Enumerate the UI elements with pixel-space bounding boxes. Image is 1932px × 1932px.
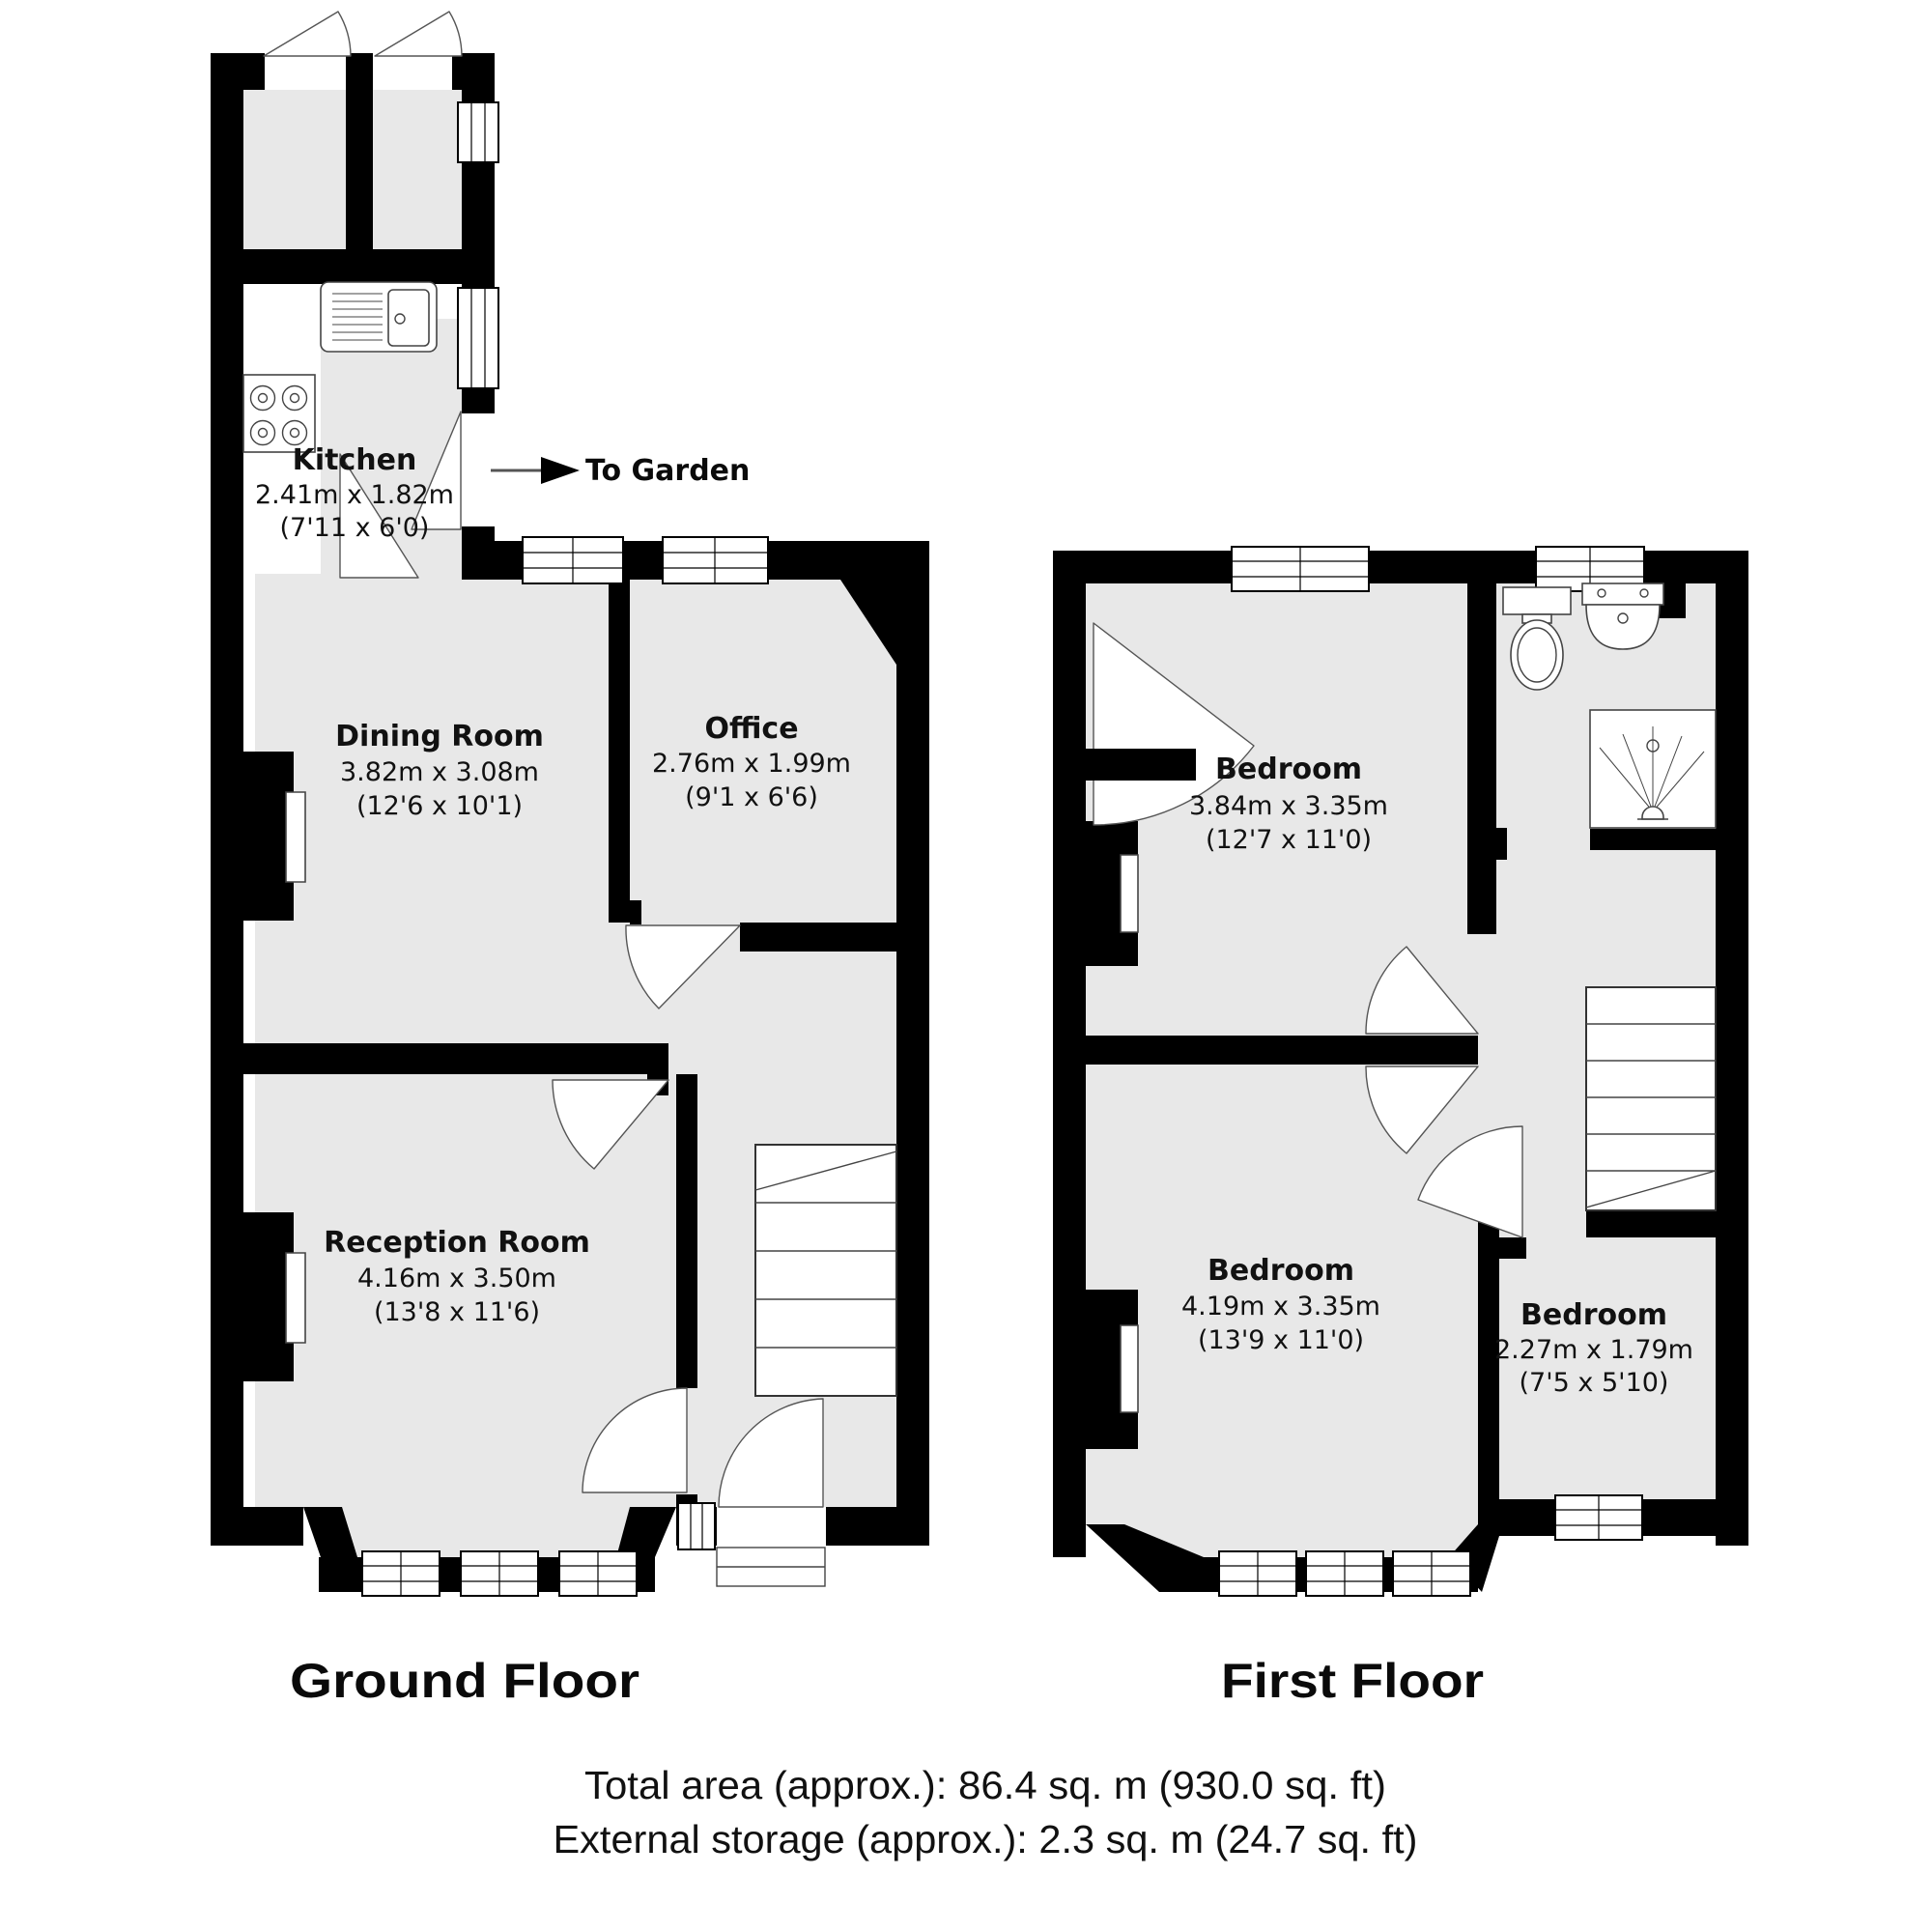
- arrow-head: [541, 457, 580, 484]
- toilet-cistern: [1503, 587, 1571, 614]
- total-area-text: Total area (approx.): 86.4 sq. m (930.0 …: [584, 1763, 1386, 1807]
- room-name: Dining Room: [335, 720, 544, 753]
- room-dim-imperial: (7'11 x 6'0): [280, 513, 430, 543]
- room-dim-metric: 3.82m x 3.08m: [340, 757, 539, 787]
- porch-steps: [717, 1548, 825, 1586]
- floorplan-page: To Garden Kitchen 2.41m x 1.82m (7'11 x …: [0, 0, 1932, 1932]
- stairs-icon: [1586, 987, 1716, 1210]
- room-name: Reception Room: [324, 1226, 590, 1260]
- room-dim-metric: 2.76m x 1.99m: [652, 749, 851, 779]
- bedroom-large-label: Bedroom 4.19m x 3.35m (13'9 x 11'0): [1181, 1254, 1380, 1355]
- room-dim-metric: 4.16m x 3.50m: [357, 1264, 556, 1293]
- basin-counter: [1582, 583, 1663, 605]
- room-dim-imperial: (12'6 x 10'1): [356, 791, 523, 821]
- floorplan-canvas: To Garden Kitchen 2.41m x 1.82m (7'11 x …: [0, 0, 1932, 1932]
- room-dim-imperial: (12'7 x 11'0): [1206, 825, 1372, 855]
- room-dim-metric: 2.27m x 1.79m: [1494, 1335, 1693, 1365]
- room-name: Kitchen: [293, 443, 417, 477]
- bedroom-front-label: Bedroom 3.84m x 3.35m (12'7 x 11'0): [1189, 753, 1388, 855]
- to-garden-label: To Garden: [585, 454, 750, 488]
- to-garden-arrow-icon: [491, 457, 580, 484]
- room-dim-metric: 2.41m x 1.82m: [255, 480, 454, 510]
- room-dim-imperial: (7'5 x 5'10): [1520, 1368, 1669, 1398]
- first-floor-title: First Floor: [1221, 1654, 1484, 1708]
- bedroom-small-label: Bedroom 2.27m x 1.79m (7'5 x 5'10): [1494, 1298, 1693, 1398]
- external-storage-text: External storage (approx.): 2.3 sq. m (2…: [554, 1817, 1418, 1861]
- room-name: Office: [704, 712, 798, 746]
- kitchen-sink-icon: [321, 282, 437, 352]
- ground-floor-plan: To Garden Kitchen 2.41m x 1.82m (7'11 x …: [211, 12, 929, 1708]
- room-name: Bedroom: [1520, 1298, 1667, 1332]
- shower-icon: [1590, 710, 1716, 828]
- first-floor-plan: Bedroom 3.84m x 3.35m (12'7 x 11'0) Bedr…: [1053, 547, 1748, 1708]
- dining-room-label: Dining Room 3.82m x 3.08m (12'6 x 10'1): [335, 720, 544, 821]
- room-name: Bedroom: [1207, 1254, 1354, 1288]
- area-summary: Total area (approx.): 86.4 sq. m (930.0 …: [554, 1763, 1418, 1861]
- room-dim-imperial: (13'9 x 11'0): [1198, 1325, 1364, 1355]
- closet-stub-wall: [1086, 749, 1196, 781]
- hob-icon: [243, 375, 315, 452]
- stairs-icon: [755, 1145, 896, 1396]
- sink-basin: [388, 290, 429, 346]
- room-dim-metric: 4.19m x 3.35m: [1181, 1292, 1380, 1321]
- room-dim-imperial: (13'8 x 11'6): [374, 1297, 540, 1327]
- room-name: Bedroom: [1215, 753, 1362, 786]
- room-dim-imperial: (9'1 x 6'6): [685, 782, 818, 812]
- room-dim-metric: 3.84m x 3.35m: [1189, 791, 1388, 821]
- stairs-outline: [755, 1145, 896, 1396]
- toilet-bowl: [1511, 620, 1563, 690]
- ground-floor-title: Ground Floor: [290, 1654, 639, 1708]
